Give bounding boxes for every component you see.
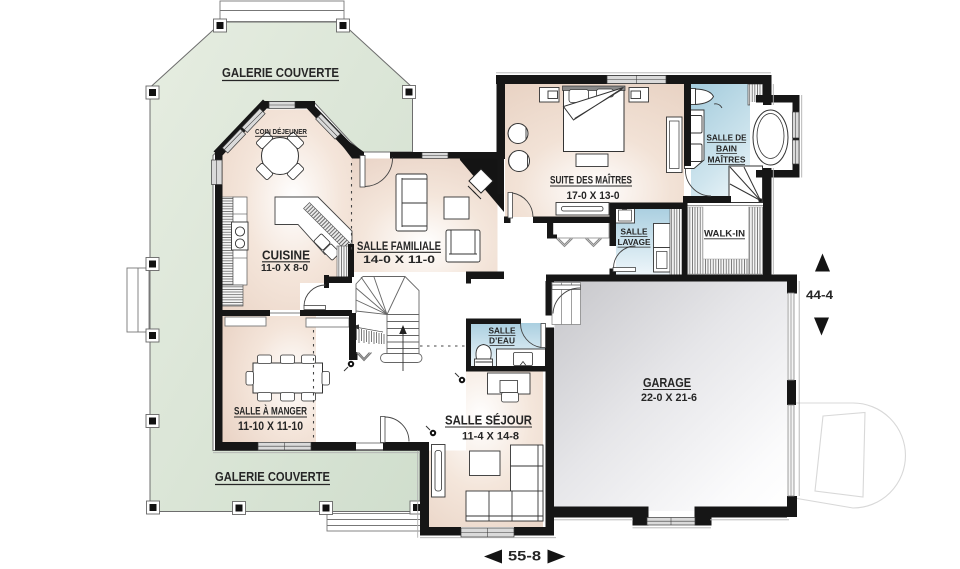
- svg-text:SALLE SÉJOUR: SALLE SÉJOUR: [445, 413, 532, 428]
- svg-text:MAÎTRES: MAÎTRES: [708, 154, 746, 165]
- svg-text:WALK-IN: WALK-IN: [704, 229, 745, 240]
- svg-text:D’EAU: D’EAU: [489, 336, 515, 346]
- svg-text:22-0 X 21-6: 22-0 X 21-6: [641, 392, 697, 404]
- svg-text:11-10 X 11-10: 11-10 X 11-10: [238, 421, 303, 433]
- svg-text:LAVAGE: LAVAGE: [618, 237, 651, 247]
- svg-text:SALLE À MANGER: SALLE À MANGER: [234, 405, 307, 418]
- svg-text:11-4 X 14-8: 11-4 X 14-8: [462, 431, 519, 443]
- svg-text:55-8: 55-8: [508, 549, 542, 564]
- svg-text:SALLE FAMILIALE: SALLE FAMILIALE: [357, 239, 441, 253]
- svg-text:CUISINE: CUISINE: [262, 249, 310, 263]
- svg-text:14-0 X 11-0: 14-0 X 11-0: [363, 254, 435, 266]
- svg-text:44-4: 44-4: [806, 290, 834, 302]
- svg-text:GALERIE COUVERTE: GALERIE COUVERTE: [215, 469, 330, 484]
- svg-text:SUITE DES MAÎTRES: SUITE DES MAÎTRES: [550, 174, 632, 187]
- svg-text:11-0 X 8-0: 11-0 X 8-0: [261, 262, 308, 274]
- svg-text:GARAGE: GARAGE: [643, 376, 691, 390]
- svg-text:COIN DÉJEUNER: COIN DÉJEUNER: [255, 127, 307, 136]
- svg-text:SALLE DE: SALLE DE: [707, 133, 747, 143]
- svg-text:BAIN: BAIN: [716, 144, 737, 154]
- svg-text:SALLE: SALLE: [489, 326, 516, 336]
- svg-text:17-0 X 13-0: 17-0 X 13-0: [567, 190, 620, 202]
- svg-text:SALLE: SALLE: [621, 227, 648, 237]
- svg-text:GALERIE COUVERTE: GALERIE COUVERTE: [222, 65, 339, 80]
